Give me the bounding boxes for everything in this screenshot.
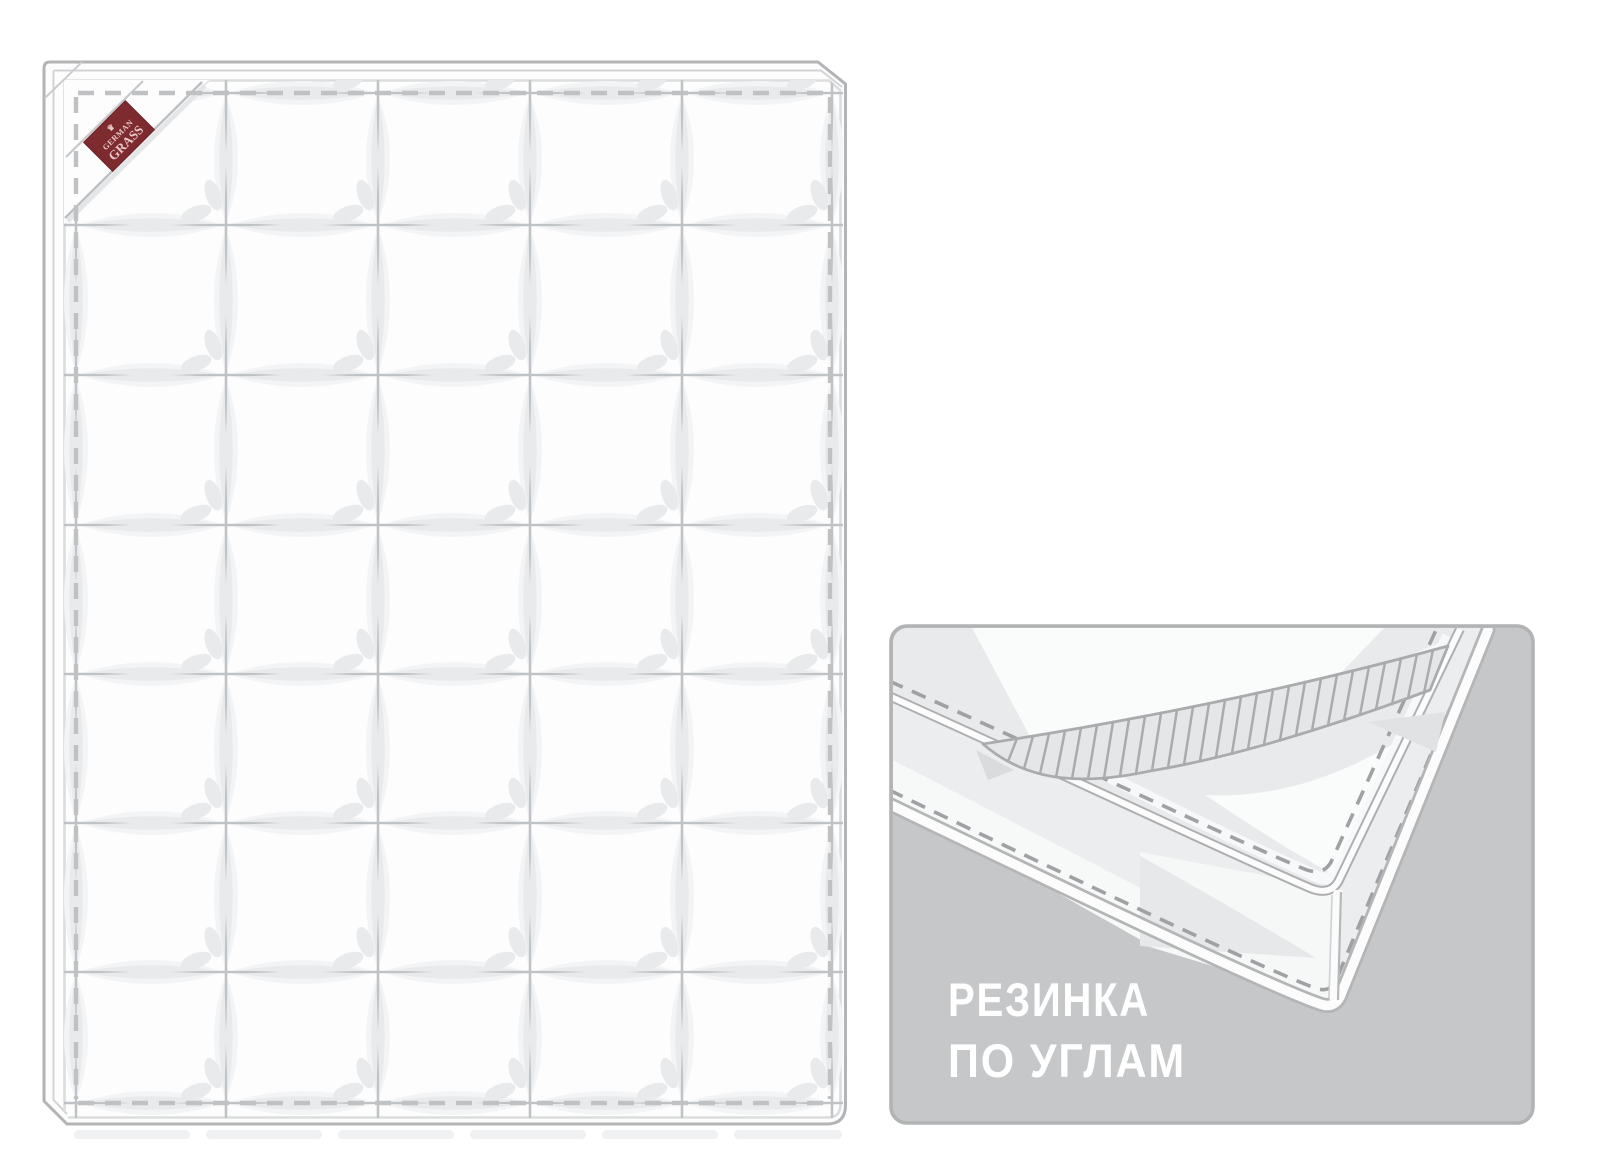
svg-text:ПО УГЛАМ: ПО УГЛАМ — [948, 1034, 1186, 1087]
svg-text:РЕЗИНКА: РЕЗИНКА — [948, 973, 1150, 1026]
